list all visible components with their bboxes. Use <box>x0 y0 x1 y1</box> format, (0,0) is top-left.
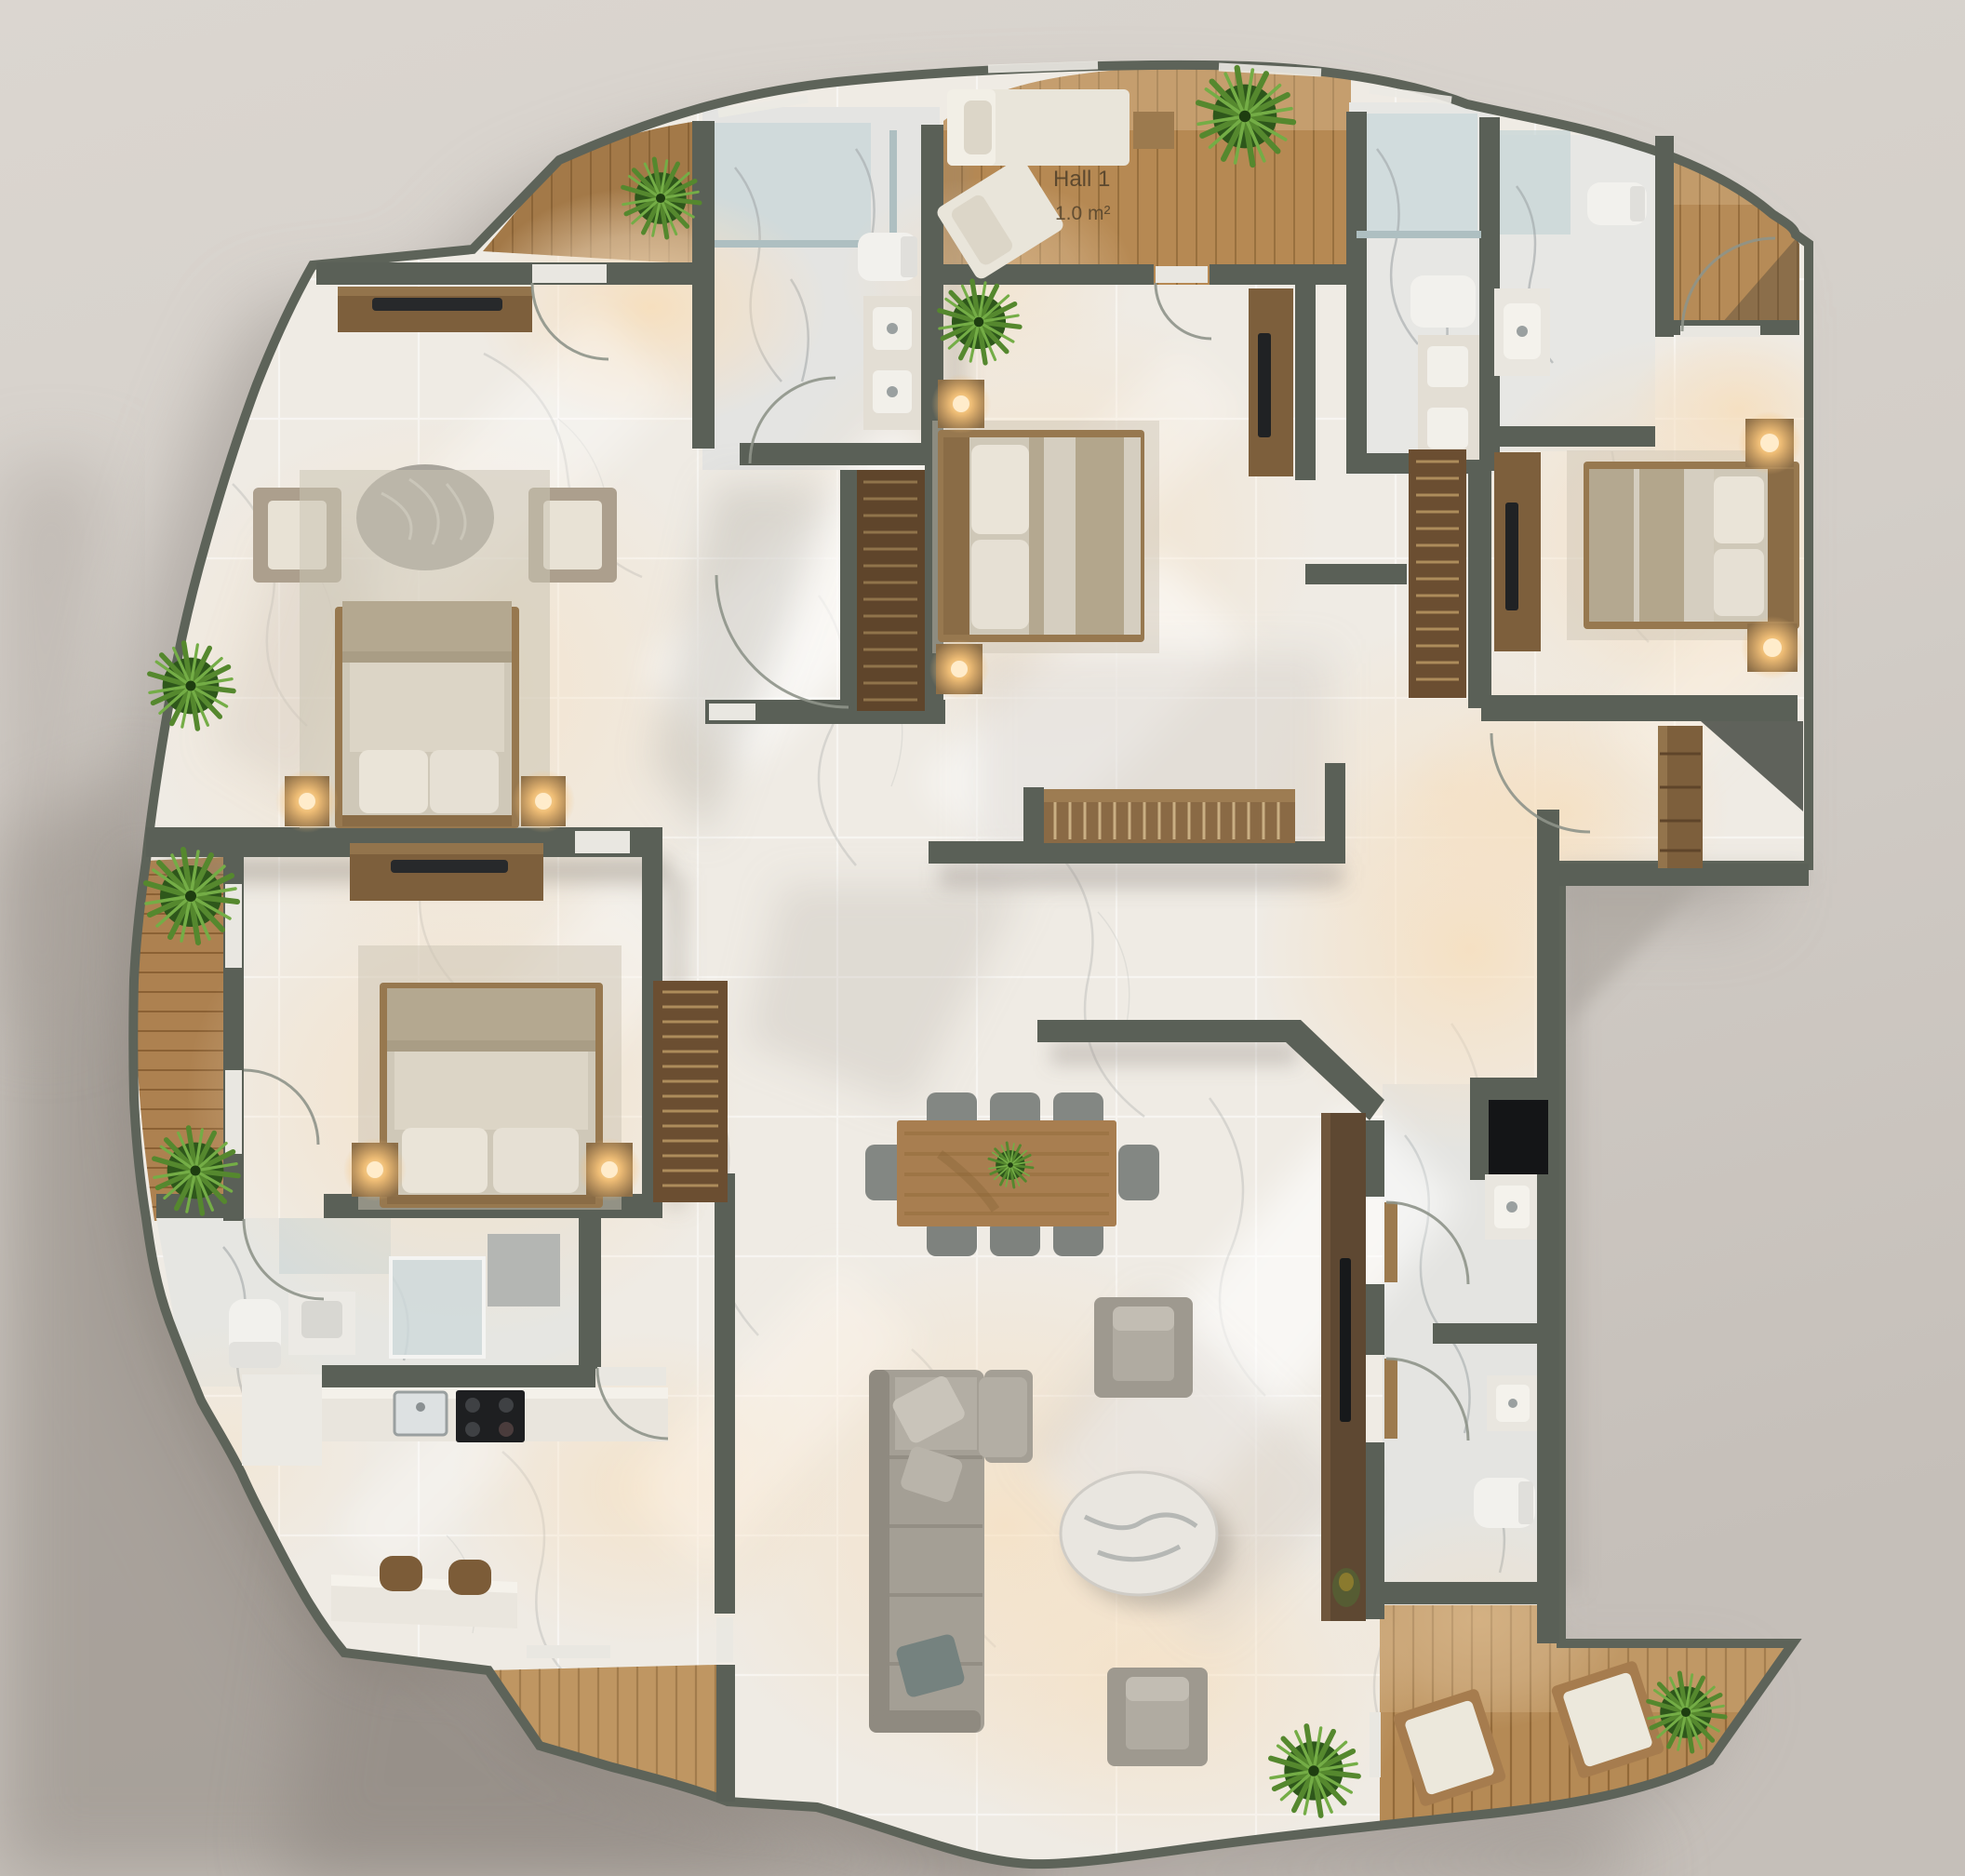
svg-text:Hall 1: Hall 1 <box>1053 167 1110 192</box>
svg-text:1.0 m²: 1.0 m² <box>1055 203 1111 224</box>
